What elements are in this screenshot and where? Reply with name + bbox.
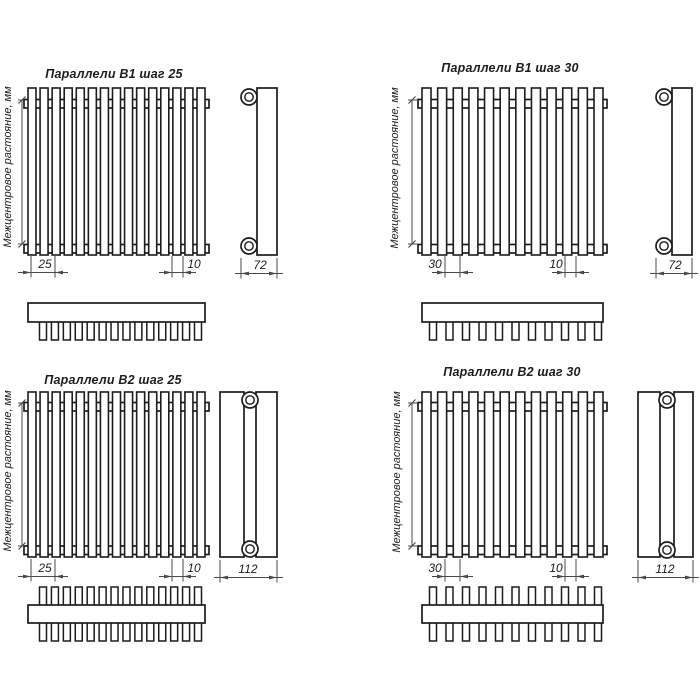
dimension-arrow bbox=[638, 576, 646, 580]
tube-section bbox=[147, 320, 154, 340]
tube-section bbox=[63, 587, 70, 607]
tube bbox=[438, 392, 447, 557]
tube-section bbox=[171, 320, 178, 340]
tube-section bbox=[111, 621, 118, 641]
tube bbox=[185, 88, 193, 255]
dimension-step-label: 30 bbox=[428, 257, 442, 271]
tube-section bbox=[99, 587, 106, 607]
dimension-arrow bbox=[220, 576, 228, 580]
tube bbox=[173, 88, 181, 255]
tube bbox=[100, 88, 108, 255]
drawing-sheet: Параллели В1 шаг 25 Межцентровое растоян… bbox=[0, 0, 700, 700]
tube-section bbox=[87, 587, 94, 607]
tube-section bbox=[562, 587, 569, 607]
connection-port-bore bbox=[660, 242, 668, 250]
tube bbox=[161, 88, 169, 255]
tube-section bbox=[40, 320, 47, 340]
tube-section bbox=[87, 621, 94, 641]
dimension-arrow bbox=[55, 271, 63, 275]
tube bbox=[185, 392, 193, 557]
tube-section bbox=[75, 320, 82, 340]
tube bbox=[76, 392, 84, 557]
dimension-depth-label: 112 bbox=[238, 562, 257, 576]
drawing-title: Параллели В1 шаг 25 bbox=[45, 67, 183, 81]
tube-section bbox=[496, 587, 503, 607]
dimension-arrow bbox=[269, 272, 277, 276]
tube-section bbox=[87, 320, 94, 340]
collector-plan bbox=[422, 605, 603, 623]
tube-section bbox=[63, 621, 70, 641]
front-view bbox=[24, 88, 209, 255]
tube bbox=[594, 392, 603, 557]
tube bbox=[422, 392, 431, 557]
tube bbox=[40, 88, 48, 255]
tube bbox=[469, 88, 478, 255]
connection-port-bore bbox=[246, 545, 254, 553]
tube-section bbox=[446, 587, 453, 607]
side-profile bbox=[672, 88, 692, 255]
side-profile bbox=[256, 392, 277, 557]
dimension-depth-label: 112 bbox=[655, 562, 674, 576]
tube-section bbox=[479, 320, 486, 340]
tube bbox=[485, 392, 494, 557]
dimension-tube-label: 10 bbox=[549, 257, 563, 271]
tube-section bbox=[123, 320, 130, 340]
dimension-arrow bbox=[269, 576, 277, 580]
tube-section bbox=[99, 621, 106, 641]
tube-section bbox=[545, 587, 552, 607]
tube bbox=[76, 88, 84, 255]
dimension-arrow bbox=[55, 575, 63, 579]
side-profile bbox=[638, 392, 660, 557]
dimension-step-label: 25 bbox=[37, 561, 52, 575]
dimension-depth-label: 72 bbox=[253, 258, 267, 272]
connection-port-bore bbox=[663, 546, 671, 554]
drawing-title: Параллели В2 шаг 30 bbox=[443, 365, 580, 379]
tube-section bbox=[463, 621, 470, 641]
tube bbox=[149, 88, 157, 255]
tube bbox=[161, 392, 169, 557]
side-profile bbox=[257, 88, 277, 255]
side-view bbox=[638, 392, 693, 558]
dimension-depth-label: 72 bbox=[668, 258, 682, 272]
tube-section bbox=[512, 320, 519, 340]
top-view bbox=[422, 303, 603, 340]
tube bbox=[485, 88, 494, 255]
tube-section bbox=[159, 621, 166, 641]
tube bbox=[563, 88, 572, 255]
tube bbox=[28, 88, 36, 255]
tube-section bbox=[496, 621, 503, 641]
tube bbox=[113, 392, 121, 557]
tube-section bbox=[159, 587, 166, 607]
tube-section bbox=[595, 621, 602, 641]
dimension-tube-label: 10 bbox=[187, 257, 201, 271]
tube bbox=[64, 88, 72, 255]
tube bbox=[113, 88, 121, 255]
tube-section bbox=[578, 587, 585, 607]
tube-section bbox=[147, 621, 154, 641]
tube-section bbox=[479, 587, 486, 607]
tube bbox=[149, 392, 157, 557]
tube-section bbox=[195, 621, 202, 641]
y-axis-label: Межцентровое растояние, мм bbox=[391, 391, 403, 553]
tube-section bbox=[171, 587, 178, 607]
tube bbox=[125, 88, 133, 255]
connection-port-bore bbox=[245, 93, 253, 101]
collector-plan bbox=[422, 303, 603, 322]
tube bbox=[40, 392, 48, 557]
tube-section bbox=[578, 621, 585, 641]
tube bbox=[500, 392, 509, 557]
dimension-arrow bbox=[557, 575, 565, 579]
dimension-arrow bbox=[684, 272, 692, 276]
tube-section bbox=[562, 621, 569, 641]
dimension-arrow bbox=[557, 271, 565, 275]
dimension-arrow bbox=[576, 271, 584, 275]
dimension-arrow bbox=[23, 271, 31, 275]
side-profile bbox=[220, 392, 244, 557]
dimension-arrow bbox=[437, 271, 445, 275]
tube bbox=[453, 392, 462, 557]
tube bbox=[64, 392, 72, 557]
tube bbox=[197, 392, 205, 557]
tube bbox=[578, 392, 587, 557]
tube-section bbox=[51, 621, 58, 641]
tube bbox=[500, 88, 509, 255]
tube-section bbox=[529, 320, 536, 340]
drawing-title: Параллели В1 шаг 30 bbox=[441, 61, 578, 75]
tube bbox=[100, 392, 108, 557]
tube bbox=[547, 88, 556, 255]
tube bbox=[531, 392, 540, 557]
y-axis-label: Межцентровое растояние, мм bbox=[2, 86, 14, 248]
tube-section bbox=[183, 320, 190, 340]
tube bbox=[88, 88, 96, 255]
tube-section bbox=[479, 621, 486, 641]
tube bbox=[137, 392, 145, 557]
tube-section bbox=[545, 621, 552, 641]
tube-section bbox=[529, 621, 536, 641]
tube bbox=[28, 392, 36, 557]
tube-section bbox=[463, 587, 470, 607]
quadrant-b2-step-30: Параллели В2 шаг 30 Межцентровое растоян… bbox=[350, 350, 700, 700]
side-view bbox=[241, 88, 277, 255]
dimension-arrow bbox=[656, 272, 664, 276]
dimension-arrow bbox=[183, 575, 191, 579]
tube bbox=[516, 392, 525, 557]
tube-section bbox=[51, 587, 58, 607]
tube-section bbox=[578, 320, 585, 340]
connection-port-bore bbox=[660, 93, 668, 101]
tube-section bbox=[147, 587, 154, 607]
tube bbox=[578, 88, 587, 255]
tube-section bbox=[99, 320, 106, 340]
y-axis-label: Межцентровое растояние, мм bbox=[2, 390, 14, 552]
side-view bbox=[656, 88, 692, 255]
tube-section bbox=[135, 587, 142, 607]
dimension-arrow bbox=[164, 575, 172, 579]
dimension-arrow bbox=[183, 271, 191, 275]
y-axis-label: Межцентровое растояние, мм bbox=[389, 87, 401, 249]
dimension-arrow bbox=[460, 271, 468, 275]
quadrant-b1-step-30: Параллели В1 шаг 30 Межцентровое растоян… bbox=[350, 0, 700, 350]
top-view bbox=[422, 587, 603, 641]
tube-section bbox=[135, 320, 142, 340]
quadrant-b1-step-25: Параллели В1 шаг 25 Межцентровое растоян… bbox=[0, 0, 350, 350]
top-view bbox=[28, 587, 205, 641]
dimension-arrow bbox=[576, 575, 584, 579]
tube bbox=[594, 88, 603, 255]
dimension-arrow bbox=[241, 272, 249, 276]
tube-section bbox=[562, 320, 569, 340]
tube-section bbox=[430, 320, 437, 340]
tube bbox=[52, 88, 60, 255]
tube-section bbox=[123, 621, 130, 641]
front-view bbox=[418, 88, 607, 255]
tube-section bbox=[123, 587, 130, 607]
tube bbox=[563, 392, 572, 557]
tube bbox=[52, 392, 60, 557]
tube-section bbox=[63, 320, 70, 340]
tube bbox=[531, 88, 540, 255]
top-view bbox=[28, 303, 205, 340]
tube bbox=[422, 88, 431, 255]
tube bbox=[516, 88, 525, 255]
tube-section bbox=[446, 621, 453, 641]
tube-section bbox=[51, 320, 58, 340]
dimension-step-label: 30 bbox=[428, 561, 442, 575]
tube-section bbox=[496, 320, 503, 340]
tube-section bbox=[40, 621, 47, 641]
connection-port-bore bbox=[245, 242, 253, 250]
tube-section bbox=[595, 587, 602, 607]
tube-section bbox=[40, 587, 47, 607]
tube-section bbox=[171, 621, 178, 641]
tube-section bbox=[159, 320, 166, 340]
tube bbox=[125, 392, 133, 557]
dimension-tube-label: 10 bbox=[187, 561, 201, 575]
tube bbox=[173, 392, 181, 557]
dimension-step-label: 25 bbox=[37, 257, 52, 271]
tube bbox=[88, 392, 96, 557]
tube-section bbox=[111, 587, 118, 607]
dimension-arrow bbox=[437, 575, 445, 579]
dimension-arrow bbox=[460, 575, 468, 579]
tube bbox=[547, 392, 556, 557]
tube-section bbox=[195, 320, 202, 340]
dimension-arrow bbox=[685, 576, 693, 580]
tube-section bbox=[545, 320, 552, 340]
tube bbox=[137, 88, 145, 255]
tube bbox=[197, 88, 205, 255]
front-view bbox=[418, 392, 607, 557]
connection-port-bore bbox=[663, 396, 671, 404]
tube-section bbox=[195, 587, 202, 607]
tube-section bbox=[135, 621, 142, 641]
dimension-arrow bbox=[164, 271, 172, 275]
collector-plan bbox=[28, 605, 205, 623]
tube-section bbox=[75, 621, 82, 641]
side-view bbox=[220, 392, 277, 557]
side-profile bbox=[674, 392, 693, 557]
dimension-tube-label: 10 bbox=[549, 561, 563, 575]
tube-section bbox=[512, 621, 519, 641]
tube-section bbox=[75, 587, 82, 607]
tube-section bbox=[529, 587, 536, 607]
tube-section bbox=[111, 320, 118, 340]
tube bbox=[469, 392, 478, 557]
tube-section bbox=[183, 621, 190, 641]
tube-section bbox=[595, 320, 602, 340]
tube-section bbox=[183, 587, 190, 607]
tube bbox=[453, 88, 462, 255]
tube-section bbox=[430, 621, 437, 641]
drawing-title: Параллели В2 шаг 25 bbox=[44, 373, 182, 387]
tube-section bbox=[430, 587, 437, 607]
tube bbox=[438, 88, 447, 255]
quadrant-b2-step-25: Параллели В2 шаг 25 Межцентровое растоян… bbox=[0, 350, 350, 700]
tube-section bbox=[512, 587, 519, 607]
front-view bbox=[24, 392, 209, 557]
connection-port-bore bbox=[246, 396, 254, 404]
tube-section bbox=[446, 320, 453, 340]
dimension-arrow bbox=[23, 575, 31, 579]
tube-section bbox=[463, 320, 470, 340]
collector-plan bbox=[28, 303, 205, 322]
